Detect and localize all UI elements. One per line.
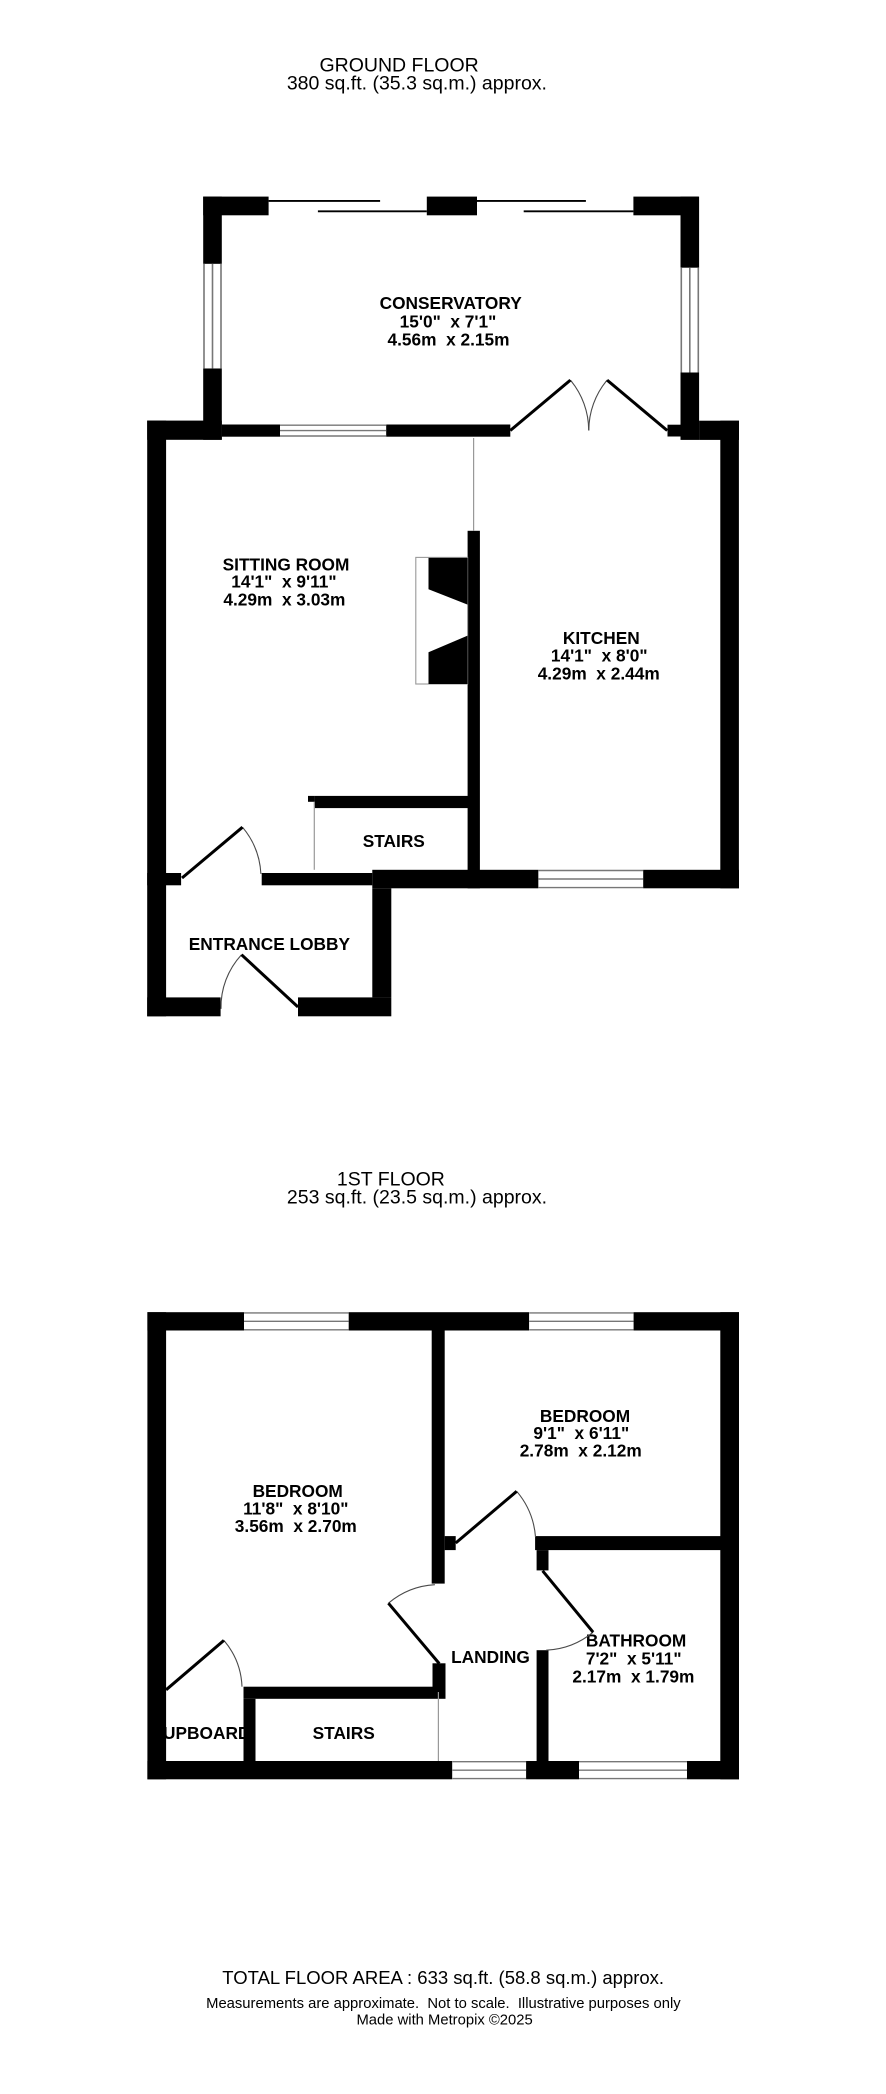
svg-text:Made with Metropix ©2025: Made with Metropix ©2025 xyxy=(356,2012,532,2028)
svg-text:CONSERVATORY: CONSERVATORY xyxy=(380,293,523,313)
svg-text:4.29m x 3.03m: 4.29m x 3.03m xyxy=(223,590,345,610)
svg-text:3.56m x 2.70m: 3.56m x 2.70m xyxy=(235,1516,357,1536)
svg-text:4.29m x 2.44m: 4.29m x 2.44m xyxy=(538,664,660,684)
svg-text:14'1" x 9'11": 14'1" x 9'11" xyxy=(231,571,336,591)
svg-text:253 sq.ft. (23.5 sq.m.) approx: 253 sq.ft. (23.5 sq.m.) approx. xyxy=(287,1187,547,1209)
svg-text:STAIRS: STAIRS xyxy=(363,831,425,851)
svg-text:LANDING: LANDING xyxy=(451,1647,530,1667)
svg-text:TOTAL FLOOR AREA : 633 sq.ft.: TOTAL FLOOR AREA : 633 sq.ft. (58.8 sq.m… xyxy=(222,1967,664,1988)
svg-text:STAIRS: STAIRS xyxy=(313,1723,375,1743)
svg-text:Measurements are approximate.: Measurements are approximate. Not to sca… xyxy=(206,1996,681,2012)
svg-text:7'2" x 5'11": 7'2" x 5'11" xyxy=(586,1648,682,1668)
svg-text:15'0" x 7'1": 15'0" x 7'1" xyxy=(400,311,497,331)
svg-text:2.78m x 2.12m: 2.78m x 2.12m xyxy=(520,1441,642,1461)
svg-text:380 sq.ft. (35.3 sq.m.) approx: 380 sq.ft. (35.3 sq.m.) approx. xyxy=(287,72,547,94)
svg-text:2.17m x 1.79m: 2.17m x 1.79m xyxy=(572,1666,694,1686)
svg-text:4.56m x 2.15m: 4.56m x 2.15m xyxy=(387,330,509,350)
svg-text:BATHROOM: BATHROOM xyxy=(586,1630,686,1650)
svg-text:ENTRANCE LOBBY: ENTRANCE LOBBY xyxy=(189,934,351,954)
